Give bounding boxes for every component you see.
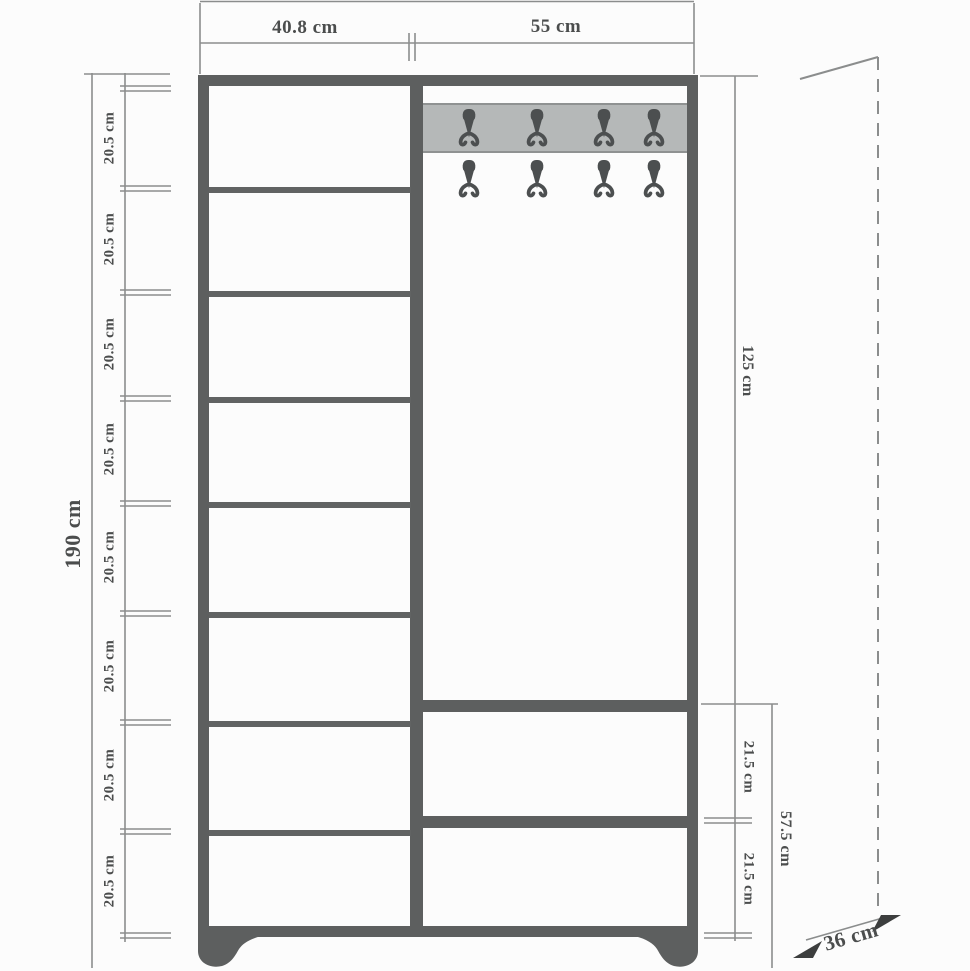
segment-height-label-6: 20.5 cm (102, 640, 119, 693)
right-lower-total-label: 57.5 cm (776, 811, 794, 867)
coat-hook-icon (590, 109, 618, 151)
left-tick-1 (120, 186, 171, 191)
drawer-divider (421, 816, 688, 828)
shelf-7 (209, 830, 411, 836)
segment-height-label-5: 20.5 cm (102, 531, 119, 584)
coat-hook-icon (523, 160, 551, 202)
left-tick-4 (120, 501, 171, 506)
coat-hook-icon (590, 160, 618, 202)
cabinet-foot-left (198, 935, 266, 968)
right-bottom-tick (704, 933, 752, 938)
segment-height-label-1: 20.5 cm (102, 112, 119, 165)
segment-height-label-7: 20.5 cm (102, 749, 119, 802)
left-tick-7 (120, 829, 171, 834)
coat-hook-icon (455, 109, 483, 151)
coat-hook-icon (640, 160, 668, 202)
right-upper-height-label: 125 cm (738, 345, 756, 396)
shelf-4 (209, 502, 411, 508)
shelf-1 (209, 187, 411, 193)
coat-hook-icon (523, 109, 551, 151)
cabinet-center-divider (410, 80, 423, 932)
top-width-right-label: 55 cm (531, 16, 582, 38)
shelf-5 (209, 612, 411, 618)
left-tick-3 (120, 396, 171, 401)
depth-top-edge-line (800, 57, 878, 79)
segment-height-label-2: 20.5 cm (102, 213, 119, 266)
right-drawer-tick (704, 818, 752, 823)
depth-arrow-left-icon (793, 941, 822, 958)
shelf-2 (209, 291, 411, 297)
drawer-height-label-1: 21.5 cm (740, 741, 757, 794)
cabinet-foot-right (630, 935, 698, 968)
shelf-3 (209, 397, 411, 403)
total-height-label: 190 cm (60, 499, 86, 569)
drawer-height-label-2: 21.5 cm (740, 853, 757, 906)
right-section-shelf (421, 700, 688, 712)
coat-hook-icon (640, 109, 668, 151)
coat-hook-icon (455, 160, 483, 202)
segment-height-label-3: 20.5 cm (102, 318, 119, 371)
left-tick-6 (120, 720, 171, 725)
segment-height-label-4: 20.5 cm (102, 423, 119, 476)
segment-height-label-8: 20.5 cm (102, 855, 119, 908)
top-width-left-label: 40.8 cm (272, 17, 338, 39)
shelf-6 (209, 721, 411, 727)
left-tick-5 (120, 611, 171, 616)
left-tick-0 (120, 86, 171, 91)
left-tick-8 (120, 933, 171, 938)
furniture-dimension-diagram: 40.8 cm 55 cm 190 cm 20.5 cm 20.5 cm 20.… (0, 0, 970, 971)
left-tick-2 (120, 290, 171, 295)
